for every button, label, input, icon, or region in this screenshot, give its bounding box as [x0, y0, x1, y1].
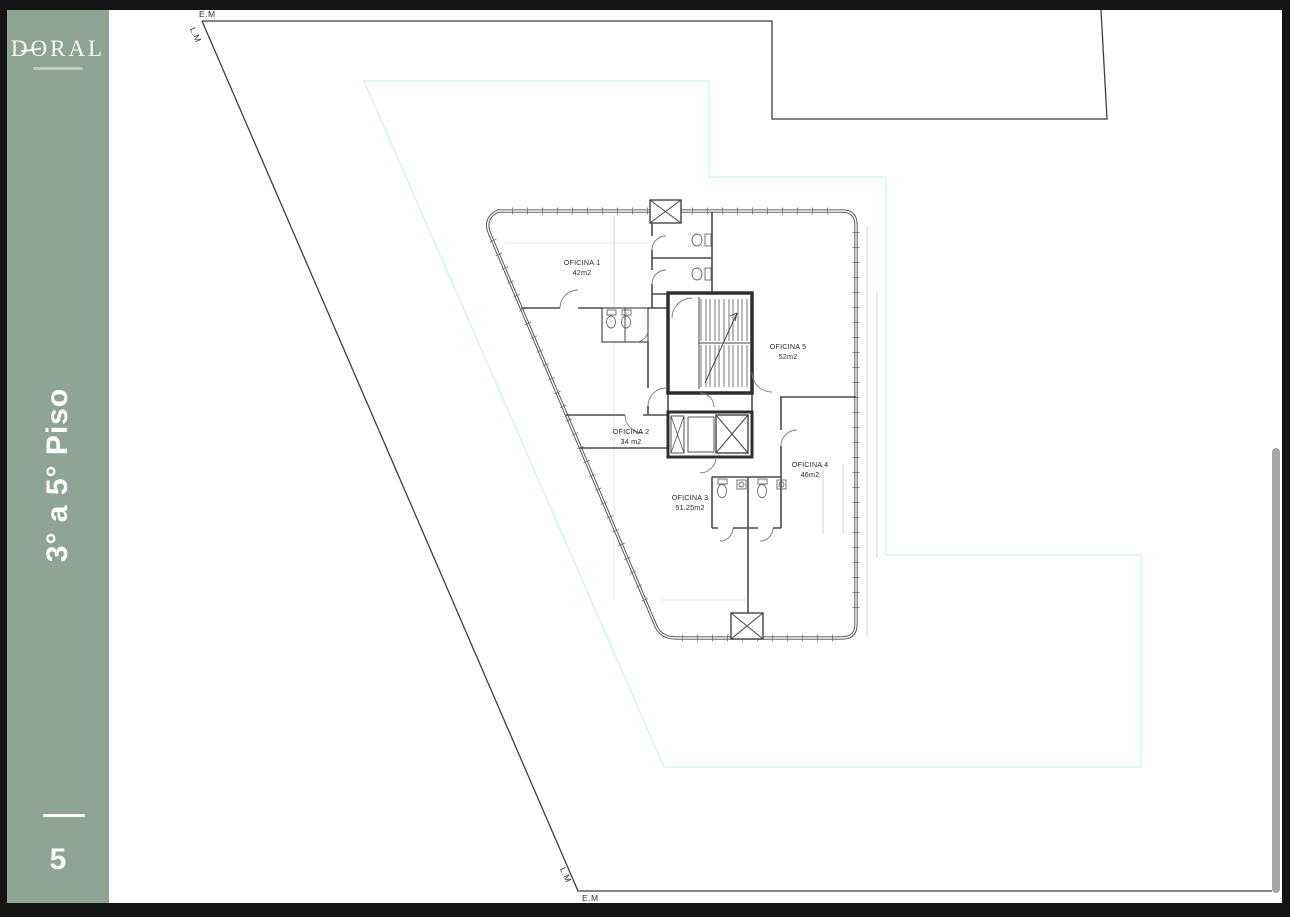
office-5-name: OFICINA 5: [770, 342, 807, 351]
office-5-area: 52m2: [779, 352, 798, 361]
office-1-name: OFICINA 1: [564, 258, 601, 267]
shaft-box-bottom: [731, 613, 763, 639]
boundary-label-em-top: E.M: [199, 9, 216, 19]
office-4-name: OFICINA 4: [792, 460, 829, 469]
bathroom-oficina3-fixtures: [718, 479, 787, 498]
boundary-label-lm-top: L.M: [188, 26, 204, 44]
office-label-2: OFICINA 2 34 m2: [613, 427, 650, 446]
office-label-3: OFICINA 3 51.25m2: [672, 493, 709, 512]
stair-core: [668, 293, 752, 393]
office-label-1: OFICINA 1 42m2: [564, 258, 601, 277]
office-2-area: 34 m2: [621, 437, 642, 446]
elevator-core: [668, 412, 752, 457]
office-label-5: OFICINA 5 52m2: [770, 342, 807, 361]
boundary-label-lm-bottom: L.M: [558, 866, 574, 884]
bathroom-left: [602, 308, 648, 342]
bathroom-top-fixtures: [692, 234, 711, 280]
office-1-area: 42m2: [573, 268, 592, 277]
office-3-name: OFICINA 3: [672, 493, 709, 502]
floor-plan-drawing: E.M L.M L.M E.M: [0, 0, 1290, 917]
shaft-box-top: [650, 200, 681, 223]
office-2-name: OFICINA 2: [613, 427, 650, 436]
vertical-scrollbar-thumb[interactable]: [1272, 448, 1280, 893]
office-3-area: 51.25m2: [675, 503, 704, 512]
office-4-area: 46m2: [801, 470, 820, 479]
boundary-label-em-bottom: E.M: [582, 893, 599, 903]
